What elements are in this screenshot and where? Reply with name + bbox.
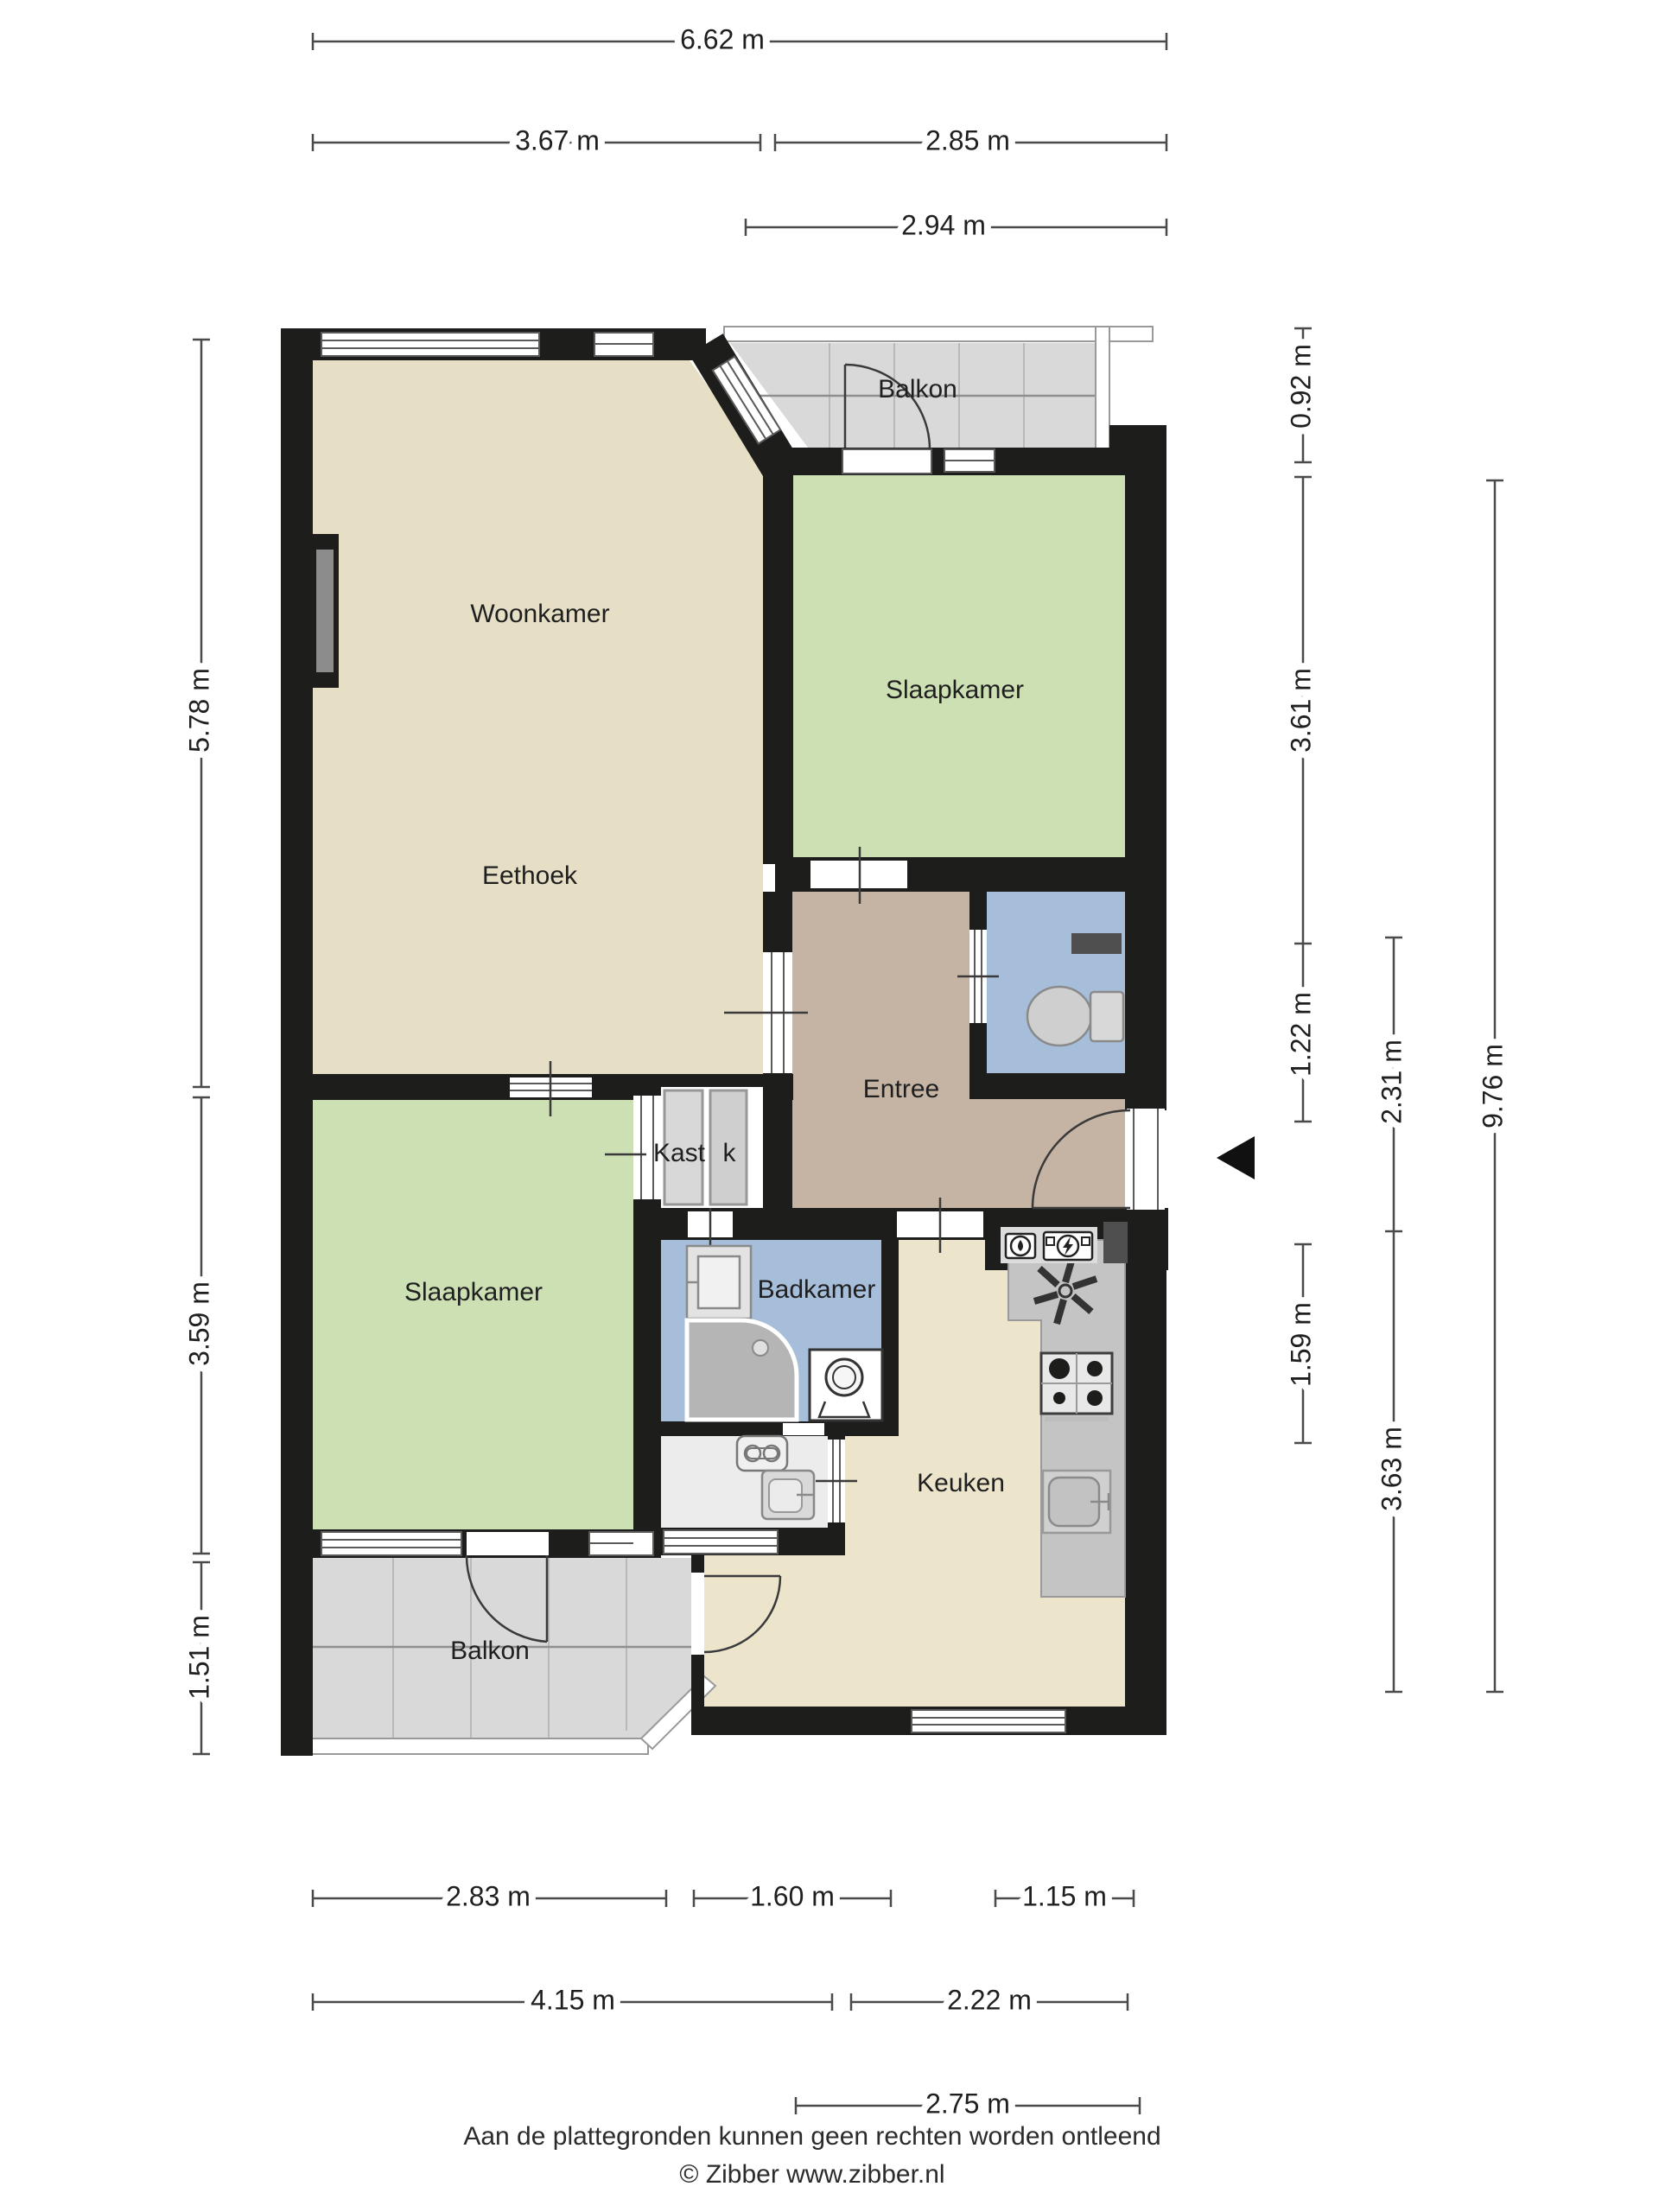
stove-icon — [1041, 1353, 1112, 1421]
dim-right-231: 2.31 m — [1376, 938, 1407, 1231]
dim-right-122: 1.22 m — [1285, 944, 1316, 1122]
svg-text:1.22 m: 1.22 m — [1285, 992, 1316, 1077]
balkon-top-door-opening — [842, 449, 931, 474]
dim-right-092: 0.92 m — [1285, 328, 1316, 462]
slaapkamer-top-floor — [793, 474, 1125, 857]
dim-bottom-222: 2.22 m — [851, 1984, 1128, 2015]
svg-text:2.31 m: 2.31 m — [1376, 1039, 1407, 1124]
svg-text:1.51 m: 1.51 m — [183, 1615, 214, 1700]
svg-text:0.92 m: 0.92 m — [1285, 344, 1316, 429]
svg-text:2.83 m: 2.83 m — [446, 1880, 531, 1911]
keuken-label: Keuken — [917, 1469, 1005, 1497]
dim-left-578: 5.78 m — [183, 340, 214, 1087]
slaapkamer-onder-window-2 — [589, 1532, 653, 1555]
dim-top-294: 2.94 m — [746, 209, 1166, 240]
svg-text:3.61 m: 3.61 m — [1285, 668, 1316, 753]
svg-text:4.15 m: 4.15 m — [531, 1984, 615, 2015]
washok-toilet-icon — [737, 1436, 787, 1471]
washing-machine-icon — [810, 1350, 882, 1421]
dim-top-367: 3.67 m — [313, 124, 760, 156]
slaapkamer-onder-window-1 — [321, 1532, 461, 1555]
front-door-opening — [1127, 1109, 1165, 1210]
svg-text:1.15 m: 1.15 m — [1022, 1880, 1107, 1911]
water-meter-icon — [1006, 1234, 1035, 1258]
woonkamer-label: Woonkamer — [470, 600, 609, 628]
dim-left-151: 1.51 m — [183, 1562, 214, 1754]
dim-bottom-415: 4.15 m — [313, 1984, 832, 2015]
entry-arrow-icon — [1217, 1136, 1255, 1179]
svg-text:3.59 m: 3.59 m — [183, 1281, 214, 1366]
washok-basin-icon — [762, 1471, 814, 1519]
bathroom-sink-icon — [687, 1246, 751, 1319]
kast-small-label: k — [723, 1139, 737, 1167]
badkamer-washok-gap — [783, 1423, 824, 1435]
balkon-onder-label: Balkon — [450, 1637, 530, 1665]
dim-left-359: 3.59 m — [183, 1097, 214, 1554]
keuken-balkon-door-opening — [691, 1573, 704, 1655]
dim-right-363: 3.63 m — [1376, 1231, 1407, 1692]
svg-text:2.75 m: 2.75 m — [925, 2088, 1010, 2119]
dim-bottom-115: 1.15 m — [995, 1880, 1134, 1911]
eethoek-label: Eethoek — [482, 861, 578, 890]
footer-disclaimer: Aan de plattegronden kunnen geen rechten… — [463, 2122, 1160, 2151]
dim-top-285: 2.85 m — [775, 124, 1166, 156]
dim-top-662: 6.62 m — [313, 23, 1166, 54]
slaapkamer-onder-label: Slaapkamer — [404, 1278, 543, 1306]
svg-text:9.76 m: 9.76 m — [1477, 1044, 1508, 1128]
svg-text:6.62 m: 6.62 m — [680, 23, 765, 54]
keuken-window — [912, 1710, 1065, 1732]
svg-text:1.60 m: 1.60 m — [750, 1880, 835, 1911]
dim-right-361: 3.61 m — [1285, 477, 1316, 944]
badkamer-label: Badkamer — [758, 1275, 876, 1304]
svg-text:2.85 m: 2.85 m — [925, 124, 1010, 156]
washok-window — [664, 1530, 778, 1554]
woonkamer-window-2 — [594, 333, 653, 356]
chimney-icon — [313, 534, 339, 688]
svg-text:1.59 m: 1.59 m — [1285, 1302, 1316, 1387]
slaapkamer-top-window — [944, 449, 995, 472]
svg-text:3.67 m: 3.67 m — [515, 124, 600, 156]
balkon-top-label: Balkon — [878, 375, 957, 404]
meter-cupboard — [1001, 1222, 1128, 1263]
kast-label: Kast — [653, 1139, 706, 1167]
corner-shower-icon — [687, 1320, 797, 1420]
svg-text:5.78 m: 5.78 m — [183, 668, 214, 753]
dim-right-159: 1.59 m — [1285, 1244, 1316, 1443]
slaapkamer-top-label: Slaapkamer — [886, 676, 1024, 704]
entree-label: Entree — [863, 1075, 939, 1103]
floorplan-canvas: Balkon Woonkamer Slaapkamer Eethoek Entr… — [0, 0, 1659, 2212]
dim-right-976: 9.76 m — [1477, 480, 1508, 1692]
svg-text:3.63 m: 3.63 m — [1376, 1427, 1407, 1511]
woonkamer-window-1 — [321, 333, 539, 356]
electricity-meter-icon — [1044, 1232, 1092, 1260]
dim-bottom-275: 2.75 m — [796, 2088, 1140, 2119]
kitchen-sink-icon — [1043, 1471, 1110, 1533]
footer: Aan de plattegronden kunnen geen rechten… — [463, 2122, 1160, 2189]
slaapkamer-onder-floor — [313, 1100, 633, 1529]
dim-bottom-283: 2.83 m — [313, 1880, 666, 1911]
woonkamer-floor — [313, 360, 763, 1074]
svg-text:2.22 m: 2.22 m — [947, 1984, 1032, 2015]
svg-text:2.94 m: 2.94 m — [901, 209, 986, 240]
dim-bottom-160: 1.60 m — [694, 1880, 891, 1911]
footer-copyright: © Zibber www.zibber.nl — [679, 2160, 944, 2189]
slaapkamer-onder-door-opening — [467, 1532, 549, 1555]
